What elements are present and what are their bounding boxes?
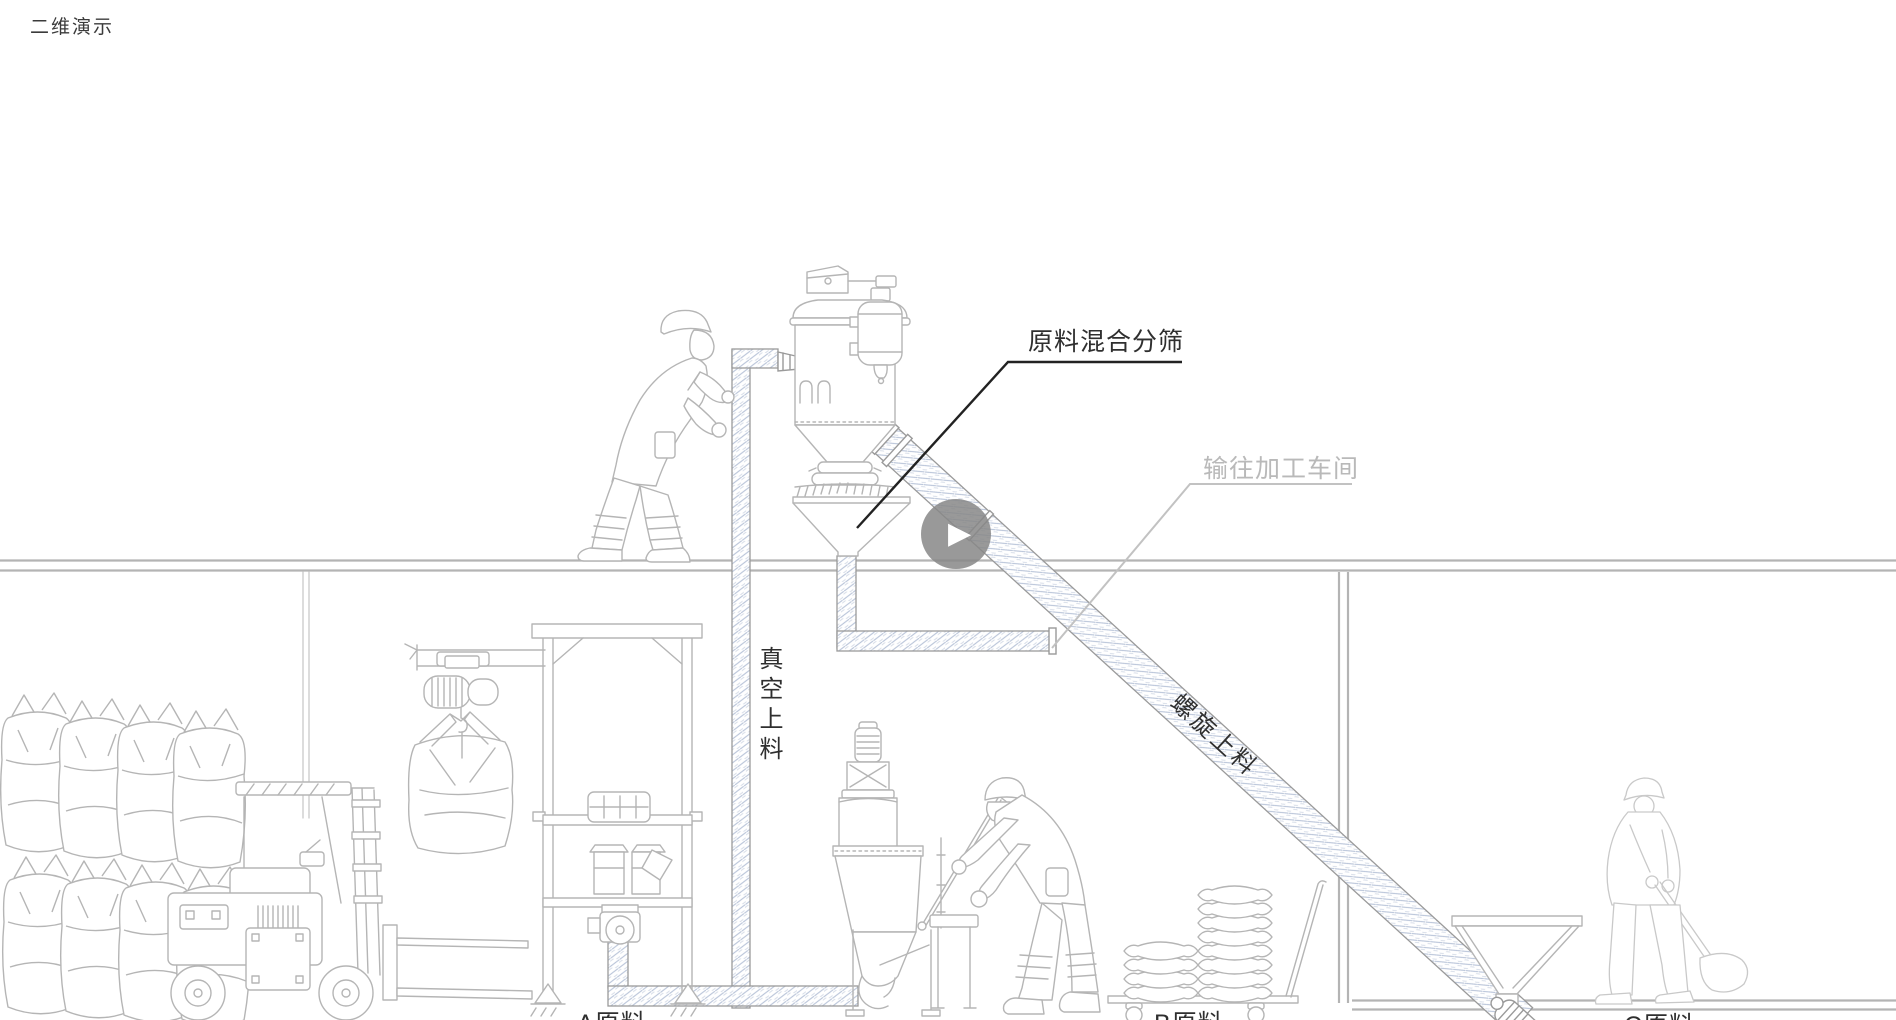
page-title: 二维演示 bbox=[30, 12, 114, 39]
operator-worker bbox=[952, 778, 1100, 1014]
background-column bbox=[303, 572, 309, 818]
upper-worker bbox=[578, 310, 734, 562]
dump-station-down-pipe bbox=[608, 942, 628, 988]
play-icon: ▶ bbox=[941, 519, 971, 549]
label-to-workshop: 输往加工车间 bbox=[1203, 449, 1359, 485]
vacuum-receiver-station bbox=[790, 266, 910, 556]
play-button[interactable]: ▶ bbox=[921, 499, 991, 569]
label-material-a: A原料 bbox=[577, 1004, 647, 1020]
bottom-conveying-pipe bbox=[608, 986, 858, 1006]
shovel-worker bbox=[1596, 778, 1748, 1004]
mixer-machine bbox=[833, 722, 1008, 1016]
label-material-b: B原料 bbox=[1154, 1004, 1224, 1020]
hanging-fibc-bag bbox=[409, 712, 513, 854]
label-mix-sieve: 原料混合分筛 bbox=[1028, 322, 1184, 358]
right-wall bbox=[1339, 572, 1348, 1003]
transfer-pipe bbox=[837, 628, 1056, 654]
bag-dump-station bbox=[405, 624, 705, 1016]
sack-trolley bbox=[1108, 881, 1326, 1020]
label-vacuum-feed: 真空上料 bbox=[751, 646, 786, 766]
label-material-c: C原料 bbox=[1624, 1006, 1695, 1020]
demo-page: 二维演示 原料混合分筛 输往加工车间 真空上料 螺旋上料 A原料 B原料 C原料… bbox=[0, 0, 1896, 1020]
